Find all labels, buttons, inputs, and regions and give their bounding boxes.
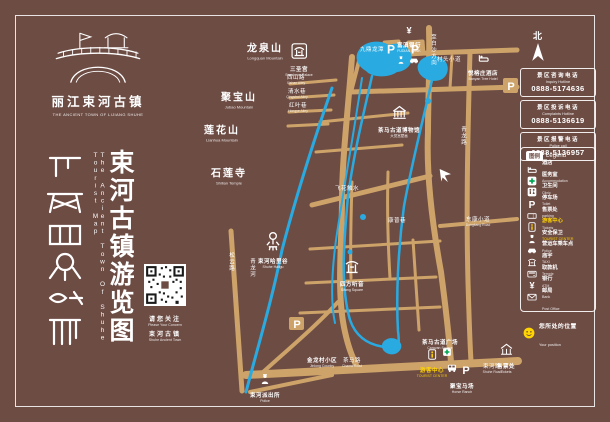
map-poi: 金龙村小区Jinlong Country <box>307 355 337 368</box>
info-icon <box>527 222 537 232</box>
map-mountain-label: 莲花山Lianhua Mountain <box>204 122 240 143</box>
qr-caption-cn: 请您关注 <box>141 314 189 323</box>
mountain-name-en: Lianhua Mountain <box>204 138 240 143</box>
map-marker <box>447 363 458 374</box>
legend-item-icon-wrap <box>526 245 538 255</box>
legend-item-en: Accommodation <box>542 179 568 183</box>
map-marker <box>409 55 419 65</box>
toilet-icon <box>527 187 537 197</box>
map-poi: 四方听音Sifang Square <box>340 258 364 292</box>
police-icon <box>527 234 537 244</box>
hotline-label-cn: 景区报警电话 <box>521 135 595 143</box>
atm-icon <box>527 269 537 279</box>
poi-name-cn: 聚宝马场 <box>450 382 474 390</box>
poi-name-cn: 束河哈里谷 <box>258 257 288 265</box>
gate-icon <box>499 343 512 356</box>
svg-text:P: P <box>507 81 514 91</box>
legend-item-icon-wrap <box>526 257 538 267</box>
bridge-logo-icon <box>50 26 146 84</box>
poi-name-cn: 金龙村小区 <box>307 356 337 364</box>
svg-text:¥: ¥ <box>406 26 412 36</box>
legend-item: 酒店Accommodation <box>526 164 593 176</box>
map-road-label: 飞花触水 <box>335 184 359 192</box>
ornament-icon <box>263 231 283 251</box>
legend-item-en: Toilet <box>542 202 550 206</box>
your-position-cn: 您所处的位置 <box>539 324 577 330</box>
sifang-icon <box>344 258 360 274</box>
map-road-label: 东康小道Dongkang Road <box>466 215 491 227</box>
hotline-box: 景区投诉电话Complaints Hotline0888-5136619 <box>520 100 596 129</box>
poi-name-en: Caravan Square <box>422 346 458 350</box>
hotline-label-en: Inquiry Hotline <box>521 80 595 84</box>
north-arrow-icon <box>530 42 546 62</box>
bus-icon <box>447 363 458 374</box>
map-mountain-label: 石莲寺Shilian Temple <box>211 165 247 186</box>
mountain-name-en: Longquan Mountain <box>247 56 283 61</box>
cross-icon <box>443 348 452 357</box>
map-marker: P <box>461 365 472 376</box>
svg-text:¥: ¥ <box>529 281 535 291</box>
car-icon <box>527 245 537 255</box>
ticket-icon <box>527 211 537 221</box>
map-road-label: 青龙河 <box>248 258 256 278</box>
dongba-pictographs-icon <box>42 150 92 355</box>
parking-icon: P <box>409 43 421 55</box>
mountain-name-cn: 聚宝山 <box>221 89 257 104</box>
yuan-icon: ¥ <box>404 25 414 35</box>
map-poi: 茶马古道博物馆大觉宫壁画 <box>378 105 420 139</box>
road-label-en: Dongkang Road <box>466 223 491 227</box>
road-label-en: Hongye Alley <box>288 109 308 113</box>
mail-icon <box>527 292 537 302</box>
map-poi: 茶马古道广场Caravan Square <box>422 337 458 350</box>
legend-title-cn: 图例 <box>526 151 543 161</box>
poi-name-cn: 游客中心 <box>417 366 448 374</box>
svg-text:P: P <box>293 319 300 329</box>
map-road-label: 九鼎龙潭 <box>360 45 384 53</box>
legend-panel: 图例 Legend 酒店Accommodation医务室Clinic卫生间Toi… <box>520 147 596 312</box>
svg-text:P: P <box>529 200 536 209</box>
logo-title-en: THE ANCIENT TOWN OF LIJIANG SHUHE <box>45 112 151 117</box>
parking-icon: P <box>527 199 537 209</box>
hotline-label-en: Complaints Hotline <box>521 112 595 116</box>
map-poi: 悦榕庄酒店Banyan Tree Hotel <box>468 50 498 81</box>
poi-name-en: Banyan Tree Hotel <box>468 77 498 81</box>
cross-icon <box>527 176 537 186</box>
hotline-label-cn: 景区投诉电话 <box>521 103 595 111</box>
legend-item-icon-wrap <box>526 211 538 221</box>
map-road-label: 清水巷Qingshui Alley <box>286 87 308 99</box>
map-marker: P <box>409 43 421 55</box>
poi-name-en: Shuhe Haligu <box>258 265 288 269</box>
parking-icon: P <box>385 43 397 55</box>
poi-name-cn: 茶马古道广场 <box>422 338 458 346</box>
logo-title-cn: 丽江束河古镇 <box>45 91 151 110</box>
legend-item: P停车场parking <box>526 198 593 210</box>
your-position-en: Your position <box>539 343 561 347</box>
map-poi: 聚宝马场Horse Ranch <box>450 381 474 394</box>
poi-name-en: Jinlong Country <box>307 364 337 368</box>
police-icon <box>259 373 271 385</box>
legend-item-en: Tickets <box>542 226 553 230</box>
map-road-label: 至白沙方向 <box>429 34 437 67</box>
map-poi: 三圣宫Sansheng Palace <box>285 43 312 77</box>
map-road-label: 红叶巷Hongye Alley <box>288 101 308 113</box>
road-label-en: Xishan Alley <box>287 81 305 85</box>
qr-code <box>144 264 186 306</box>
smiley-icon <box>523 327 535 339</box>
parking-icon: P <box>461 365 472 376</box>
legend-item: 邮局Post Office <box>526 291 593 303</box>
hotline-number: 0888-5174636 <box>521 84 595 93</box>
map-road-label: 康普巷 <box>388 216 406 224</box>
poi-name-cn: 三圣宫 <box>285 65 312 73</box>
legend-item: 卫生间Toilet <box>526 187 593 199</box>
compass: 北 <box>524 29 552 67</box>
poi-name-en: TOURIST CENTER <box>417 374 448 378</box>
qr-town-en: Shuhe Ancient Town <box>141 338 189 342</box>
legend-item-en: Clinic <box>542 191 551 195</box>
svg-text:P: P <box>387 43 395 55</box>
mountain-name-cn: 龙泉山 <box>247 40 283 55</box>
poi-name-cn: 束河派出所 <box>250 391 280 399</box>
map-road-label: 西山路Xishan Alley <box>287 73 305 85</box>
legend-items: 酒店Accommodation医务室Clinic卫生间ToiletP停车场par… <box>526 164 593 303</box>
legend-item-en: parking <box>542 214 554 218</box>
poi-name-en: 大觉宫壁画 <box>378 134 420 139</box>
poi-name-cn: 四方听音 <box>340 280 364 288</box>
legend-item: 取款机ATM <box>526 268 593 280</box>
car-icon <box>409 55 419 65</box>
map-mountain-label: 龙泉山Longquan Mountain <box>247 40 283 61</box>
museum-icon <box>391 105 406 120</box>
legend-item-icon-wrap <box>526 234 538 244</box>
map-poi: 束河派出所Police <box>250 372 280 403</box>
tourist-map-poster: 龙泉山Longquan Mountain聚宝山Jubao Mountain莲花山… <box>0 0 610 422</box>
map-road-label: 茶马路Chama Road <box>342 356 362 368</box>
road-label-en: Qingshui Alley <box>286 95 308 99</box>
map-marker <box>437 167 453 183</box>
map-marker: P <box>292 319 303 330</box>
legend-item-icon-wrap <box>526 176 538 186</box>
brand-logo: 丽江束河古镇 THE ANCIENT TOWN OF LIJIANG SHUHE <box>45 26 151 117</box>
hotline-number: 0888-5136619 <box>521 116 595 125</box>
legend-item-icon-wrap <box>526 269 538 279</box>
map-marker: P <box>506 81 517 92</box>
mountain-name-cn: 莲花山 <box>204 122 240 137</box>
road-label-en: Shuhe Road <box>483 370 502 374</box>
legend-item-icon-wrap <box>526 164 538 174</box>
yuan-icon: ¥ <box>527 280 537 290</box>
map-mountain-label: 聚宝山Jubao Mountain <box>221 89 257 110</box>
poi-name-cn: 茶马古道博物馆 <box>378 126 420 134</box>
bed-icon <box>527 164 537 174</box>
legend-item: 营运车乘车点TAXI <box>526 245 593 257</box>
police-icon <box>397 56 406 65</box>
compass-north-label: 北 <box>524 29 552 42</box>
legend-item-en: Police <box>542 249 552 253</box>
temple-box-icon <box>291 43 307 59</box>
svg-text:P: P <box>411 43 419 55</box>
parking-icon: P <box>506 81 517 92</box>
mountain-name-en: Jubao Mountain <box>221 105 257 110</box>
qr-caption-en: Please Your Concern <box>141 323 189 327</box>
legend-item-en: Temple <box>542 272 554 276</box>
legend-item-icon-wrap <box>526 222 538 232</box>
smiley-icon <box>523 327 535 339</box>
qr-block: 请您关注 Please Your Concern 束河古镇 Shuhe Anci… <box>141 264 189 342</box>
your-position-row: 您所处的位置 Your position <box>523 315 577 351</box>
landmark-icon <box>437 167 453 183</box>
map-poi: 束河哈里谷Shuhe Haligu <box>258 231 288 269</box>
map-road-label: 青龙路 <box>459 126 467 146</box>
map-marker <box>397 56 406 65</box>
legend-item-en: TAXI <box>542 260 550 264</box>
hotline-label-cn: 景区咨询电话 <box>521 71 595 79</box>
temple-icon <box>527 257 537 267</box>
qr-town-cn: 束河古镇 <box>141 329 189 338</box>
map-road-label: 束河路Shuhe Road <box>483 362 502 374</box>
map-road-label: 村头小道 <box>437 55 461 63</box>
legend-item-icon-wrap <box>526 292 538 302</box>
poi-name-en: Police <box>250 399 280 403</box>
poi-name-en: Sifang Square <box>340 288 364 292</box>
svg-text:P: P <box>462 365 469 375</box>
map-marker: P <box>385 43 397 55</box>
legend-item-en: Post Office <box>542 307 560 311</box>
hotline-box: 景区咨询电话Inquiry Hotline0888-5174636 <box>520 68 596 97</box>
map-road-label: 松云路 <box>227 252 235 272</box>
legend-item-en: Bank <box>542 295 550 299</box>
legend-item-cn: 邮局 <box>542 288 552 294</box>
poi-name-en: Horse Ranch <box>450 390 474 394</box>
parking-icon: P <box>292 319 303 330</box>
map-title-cn: 束河古镇游览图 <box>102 149 138 379</box>
road-label-en: Chama Road <box>342 364 362 368</box>
legend-item-en: ATM <box>542 284 549 288</box>
poi-name-cn: 悦榕庄酒店 <box>468 69 498 77</box>
bed-icon <box>477 52 488 63</box>
legend-item-icon-wrap <box>526 187 538 197</box>
legend-item-icon-wrap: ¥ <box>526 280 538 290</box>
map-marker <box>443 348 452 357</box>
legend-item-icon-wrap: P <box>526 199 538 209</box>
info-icon <box>426 349 437 360</box>
mountain-name-en: Shilian Temple <box>211 181 247 186</box>
mountain-name-cn: 石莲寺 <box>211 165 247 180</box>
